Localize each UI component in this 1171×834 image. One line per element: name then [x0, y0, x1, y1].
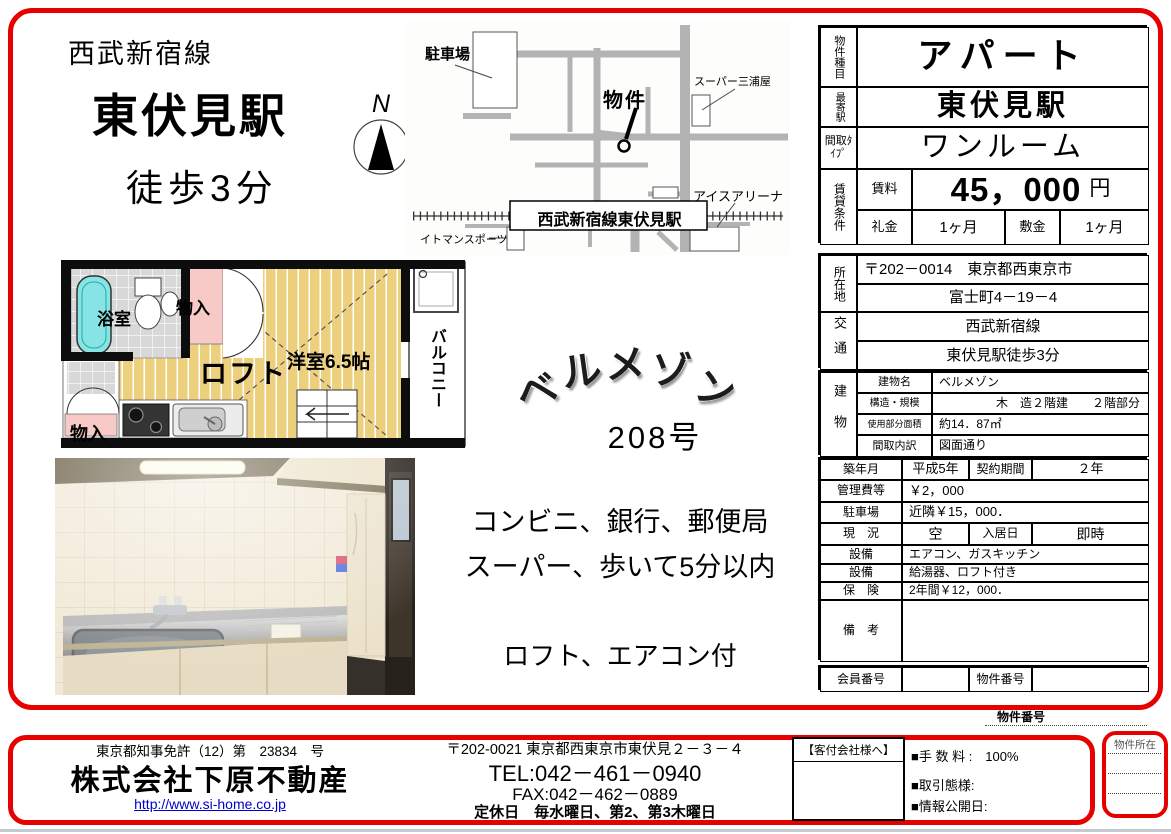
- remarks-label: 備 考: [820, 600, 902, 662]
- kitchen-photo: [55, 458, 415, 695]
- property-flyer: 西武新宿線 東伏見駅 徒歩3分 N: [0, 0, 1171, 834]
- map-label-ice-arena: アイスアリーナ: [693, 186, 783, 205]
- key-money-label: 礼金: [857, 210, 912, 245]
- rent-value: 45，000 円: [912, 169, 1149, 210]
- spec-table-details: 築年月 平成5年 契約期間 ２年 管理費等 ￥2，000 駐車場 近隣￥15，0…: [818, 457, 1147, 660]
- parking-value: 近隣￥15，000．: [902, 502, 1149, 523]
- map-station-sign: 西武新宿線東伏見駅: [512, 206, 707, 230]
- side-property-no-line: [985, 710, 1147, 726]
- rent-label: 賃料: [857, 169, 912, 210]
- compass-icon: [352, 116, 412, 180]
- agent-box-heading: 【客付会社様へ】: [794, 739, 903, 762]
- publish-date-note: ■情報公開日:: [911, 796, 987, 815]
- spec-table-address: 所在地 〒202－0014 東京都西東京市 富士町4－19－4 交通 西武新宿線…: [818, 253, 1147, 368]
- agent-box: 【客付会社様へ】: [792, 737, 905, 821]
- built-value: 平成5年: [902, 459, 969, 480]
- equipment1-value: エアコン、ガスキッチン: [902, 545, 1149, 564]
- area-value: 約14．87㎡: [932, 414, 1149, 435]
- member-no-label: 会員番号: [820, 667, 902, 692]
- remarks-value: [902, 600, 1149, 662]
- address-line2: 富士町4－19－4: [857, 284, 1149, 312]
- access-line2: 東伏見駅徒歩3分: [857, 341, 1149, 370]
- property-type-label: 物件種目: [820, 27, 857, 87]
- plan-label-closet-top: 物入: [176, 294, 210, 319]
- property-location-line3: [1108, 778, 1161, 794]
- deal-type-note: ■取引態様:: [911, 775, 974, 794]
- equipment2-label: 設備: [820, 564, 902, 582]
- equipment2-value: 給湯器、ロフト付き: [902, 564, 1149, 582]
- compass-n-label: N: [372, 90, 390, 119]
- rent-unit: 円: [1089, 177, 1110, 201]
- layout-type-label: 間取ﾀｲﾌﾟ: [820, 127, 857, 169]
- plan-label-loft: ロフト: [200, 352, 287, 391]
- key-money-value: 1ヶ月: [912, 210, 1005, 245]
- contract-label: 契約期間: [969, 459, 1032, 480]
- building-label: 建物: [820, 372, 857, 457]
- property-no-value: [1032, 667, 1149, 692]
- deposit-label: 敷金: [1005, 210, 1060, 245]
- company-url-link[interactable]: http://www.si-home.co.jp: [134, 796, 286, 812]
- fee-note: ■手 数 料 : 100%: [911, 746, 1019, 765]
- address-label: 所在地: [820, 255, 857, 312]
- layout-detail-value: 図面通り: [932, 435, 1149, 457]
- mgmt-fee-label: 管理費等: [820, 480, 902, 502]
- movein-value: 即時: [1032, 523, 1149, 545]
- plan-label-closet-bottom: 物入: [70, 420, 106, 446]
- structure-label: 構造・規模: [857, 393, 932, 414]
- status-value: 空: [902, 523, 969, 545]
- access-label: 交通: [820, 312, 857, 370]
- contract-value: ２年: [1032, 459, 1149, 480]
- equipment1-label: 設備: [820, 545, 902, 564]
- building-name-value: ベルメゾン: [932, 372, 1149, 393]
- note-supermarket: スーパー、歩いて5分以内: [445, 545, 795, 584]
- company-url-wrap: http://www.si-home.co.jp: [20, 796, 400, 812]
- office-closed-days: 定休日 毎水曜日、第2、第3木曜日: [400, 801, 790, 822]
- scan-edge: [0, 829, 1171, 832]
- mgmt-fee-value: ￥2，000: [902, 480, 1149, 502]
- layout-detail-label: 間取内訳: [857, 435, 932, 457]
- layout-type-value: ワンルーム: [857, 127, 1149, 169]
- structure-value: 木 造２階建 ２階部分: [932, 393, 1149, 414]
- property-type-value: アパート: [857, 27, 1149, 87]
- map-label-property: 物件: [603, 84, 647, 113]
- walk-time-heading: 徒歩3分: [126, 158, 278, 212]
- map-label-sports-club: イトマンスポーツ: [420, 231, 508, 247]
- plan-label-room: 洋室6.5帖: [287, 347, 370, 374]
- note-conveniences: コンビニ、銀行、郵便局: [455, 500, 785, 539]
- plan-label-bath: 浴室: [97, 305, 131, 330]
- nearest-station-label: 最寄駅: [820, 87, 857, 127]
- spec-table-numbers: 会員番号 物件番号: [818, 665, 1147, 690]
- building-name-label: 建物名: [857, 372, 932, 393]
- map-label-supermarket: スーパー三浦屋: [694, 73, 771, 89]
- address-line1: 〒202－0014 東京都西東京市: [857, 255, 1149, 284]
- spec-table-building: 建物 建物名 ベルメゾン 構造・規模 木 造２階建 ２階部分 使用部分面積 約1…: [818, 370, 1147, 455]
- insurance-label: 保 険: [820, 582, 902, 600]
- unit-number: 208号: [560, 412, 750, 457]
- member-no-value: [902, 667, 969, 692]
- nearest-station-value: 東伏見駅: [857, 87, 1149, 127]
- deposit-value: 1ヶ月: [1060, 210, 1149, 245]
- area-label: 使用部分面積: [857, 414, 932, 435]
- company-name: 株式会社下原不動産: [20, 757, 400, 799]
- rental-terms-label: 賃貸条件: [820, 169, 857, 245]
- rent-amount: 45，000: [951, 171, 1082, 209]
- note-loft-aircon: ロフト、エアコン付: [455, 636, 785, 673]
- property-location-line2: [1108, 758, 1161, 774]
- movein-label: 入居日: [969, 523, 1032, 545]
- plan-label-balcony: バルコニー: [424, 328, 448, 446]
- access-line1: 西武新宿線: [857, 312, 1149, 341]
- rail-line-heading: 西武新宿線: [68, 32, 213, 71]
- spec-table-top: 物件種目 アパート 最寄駅 東伏見駅 間取ﾀｲﾌﾟ ワンルーム 賃貸条件 賃料 …: [818, 25, 1147, 243]
- building-name-display: ベルメゾン: [488, 342, 768, 400]
- parking-label: 駐車場: [820, 502, 902, 523]
- property-no-label: 物件番号: [969, 667, 1032, 692]
- insurance-value: 2年間￥12，000．: [902, 582, 1149, 600]
- status-label: 現 況: [820, 523, 902, 545]
- built-label: 築年月: [820, 459, 902, 480]
- property-location-line1: [1108, 738, 1161, 754]
- station-heading: 東伏見駅: [92, 80, 288, 146]
- map-label-parking: 駐車場: [425, 43, 470, 64]
